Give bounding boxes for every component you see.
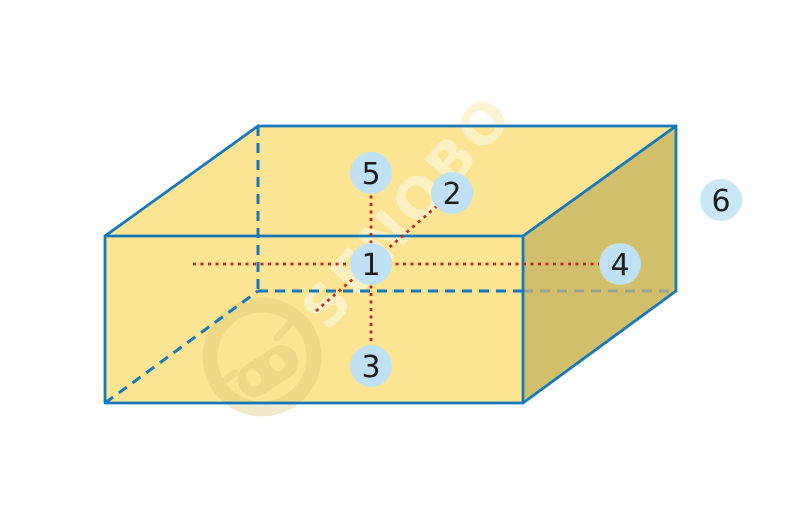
point-marker-4: 4 bbox=[599, 243, 641, 285]
figure-canvas: SENOBO bbox=[0, 0, 795, 521]
point-5-label: 5 bbox=[361, 157, 380, 192]
point-marker-1: 1 bbox=[350, 243, 392, 285]
point-marker-3: 3 bbox=[350, 345, 392, 387]
cuboid-diagram: SENOBO bbox=[0, 0, 795, 521]
point-6-label: 6 bbox=[711, 184, 730, 219]
point-4-label: 4 bbox=[610, 248, 629, 283]
point-marker-5: 5 bbox=[350, 152, 392, 194]
point-3-label: 3 bbox=[361, 350, 380, 385]
point-marker-6: 6 bbox=[700, 179, 742, 221]
point-1-label: 1 bbox=[361, 248, 380, 283]
point-marker-2: 2 bbox=[431, 172, 473, 214]
point-2-label: 2 bbox=[442, 177, 461, 212]
